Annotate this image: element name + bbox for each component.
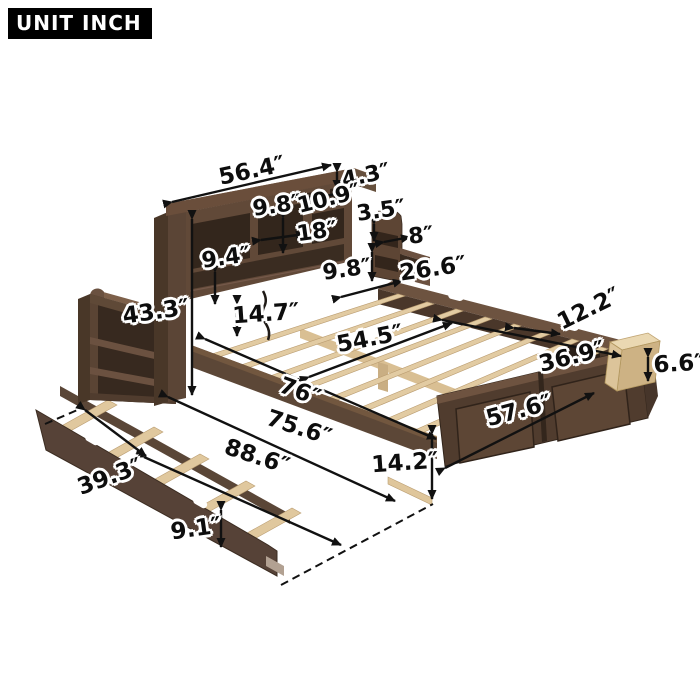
dim-right-shelf-depth: 8″ (407, 222, 435, 249)
dim-under-headboard-clearance: 14.7″ (232, 299, 301, 330)
dim-side-rail-height: 14.2″ (371, 448, 440, 479)
pulled-drawer (605, 333, 660, 391)
unit-inch-badge: UNIT INCH (8, 8, 152, 39)
dim-drawer-height: 6.6″ (653, 350, 700, 379)
product-dimension-diagram: 56.4″ 4.3″ 9.8″ 10.9″ 3.5″ 18″ 8″ 9.4″ 9… (0, 0, 700, 700)
